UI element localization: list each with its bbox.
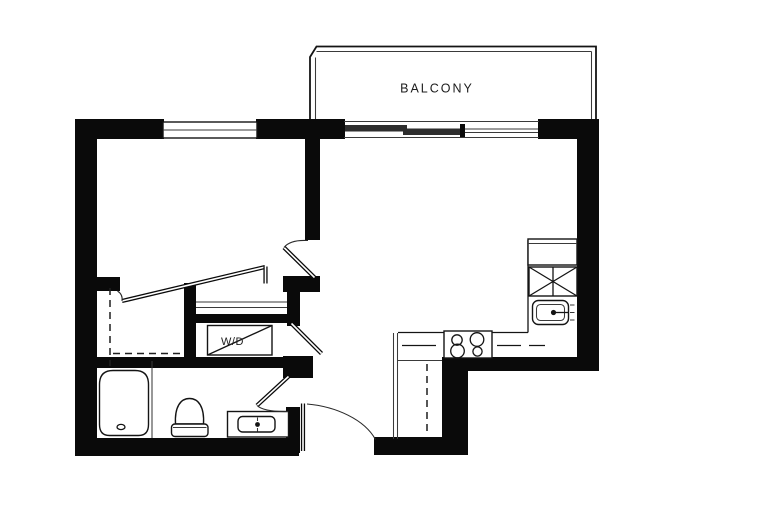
washer-dryer-label: W/D [221,336,244,348]
bedroom-door-corner-block [283,276,320,292]
hall-wall-upper [287,292,300,326]
bedroom-bottom-wall-stub [97,277,120,291]
floor-plan-page: BALCONY [0,0,760,505]
closet-laundry-divider-wall [184,283,196,368]
exterior-walls [75,119,599,456]
vanity-faucet [255,422,260,427]
bedroom-door [284,240,315,277]
living-top-wall-right [538,119,599,139]
bathroom-door-swing-arc [257,406,288,412]
balcony-label: BALCONY [400,82,474,96]
floor-plan-canvas: BALCONY [0,0,760,505]
bedroom-living-partition-wall [305,119,320,240]
slider-panel-right [403,129,463,136]
laundry-closet: W/D [208,324,322,356]
kitchen-sink-handle-ticks [570,305,575,320]
closet-door-arc [118,291,123,301]
bottom-wall-left [75,438,299,456]
right-wall [577,139,599,371]
bedroom-top-wall-left [75,119,164,139]
bedroom-window [163,122,257,138]
left-wall [75,119,97,456]
laundry-top-wall [196,314,288,323]
kitchen-sink-faucet [551,310,556,315]
bathroom-top-wall [97,357,284,368]
kitchen [394,239,578,439]
slider-jamb-tick [460,124,465,137]
entry-door-swing-arc [307,404,376,440]
slider-panel-left [345,125,407,132]
balcony-sliding-door [344,122,539,138]
toilet-tank [172,424,209,437]
bathroom-corner-wall [283,356,313,378]
bedroom-door-swing-arc [284,240,308,247]
refrigerator [528,239,577,265]
balcony: BALCONY [310,47,596,121]
bottom-wall-right [374,437,468,455]
toilet-bowl [175,399,203,425]
bathroom [100,361,289,438]
